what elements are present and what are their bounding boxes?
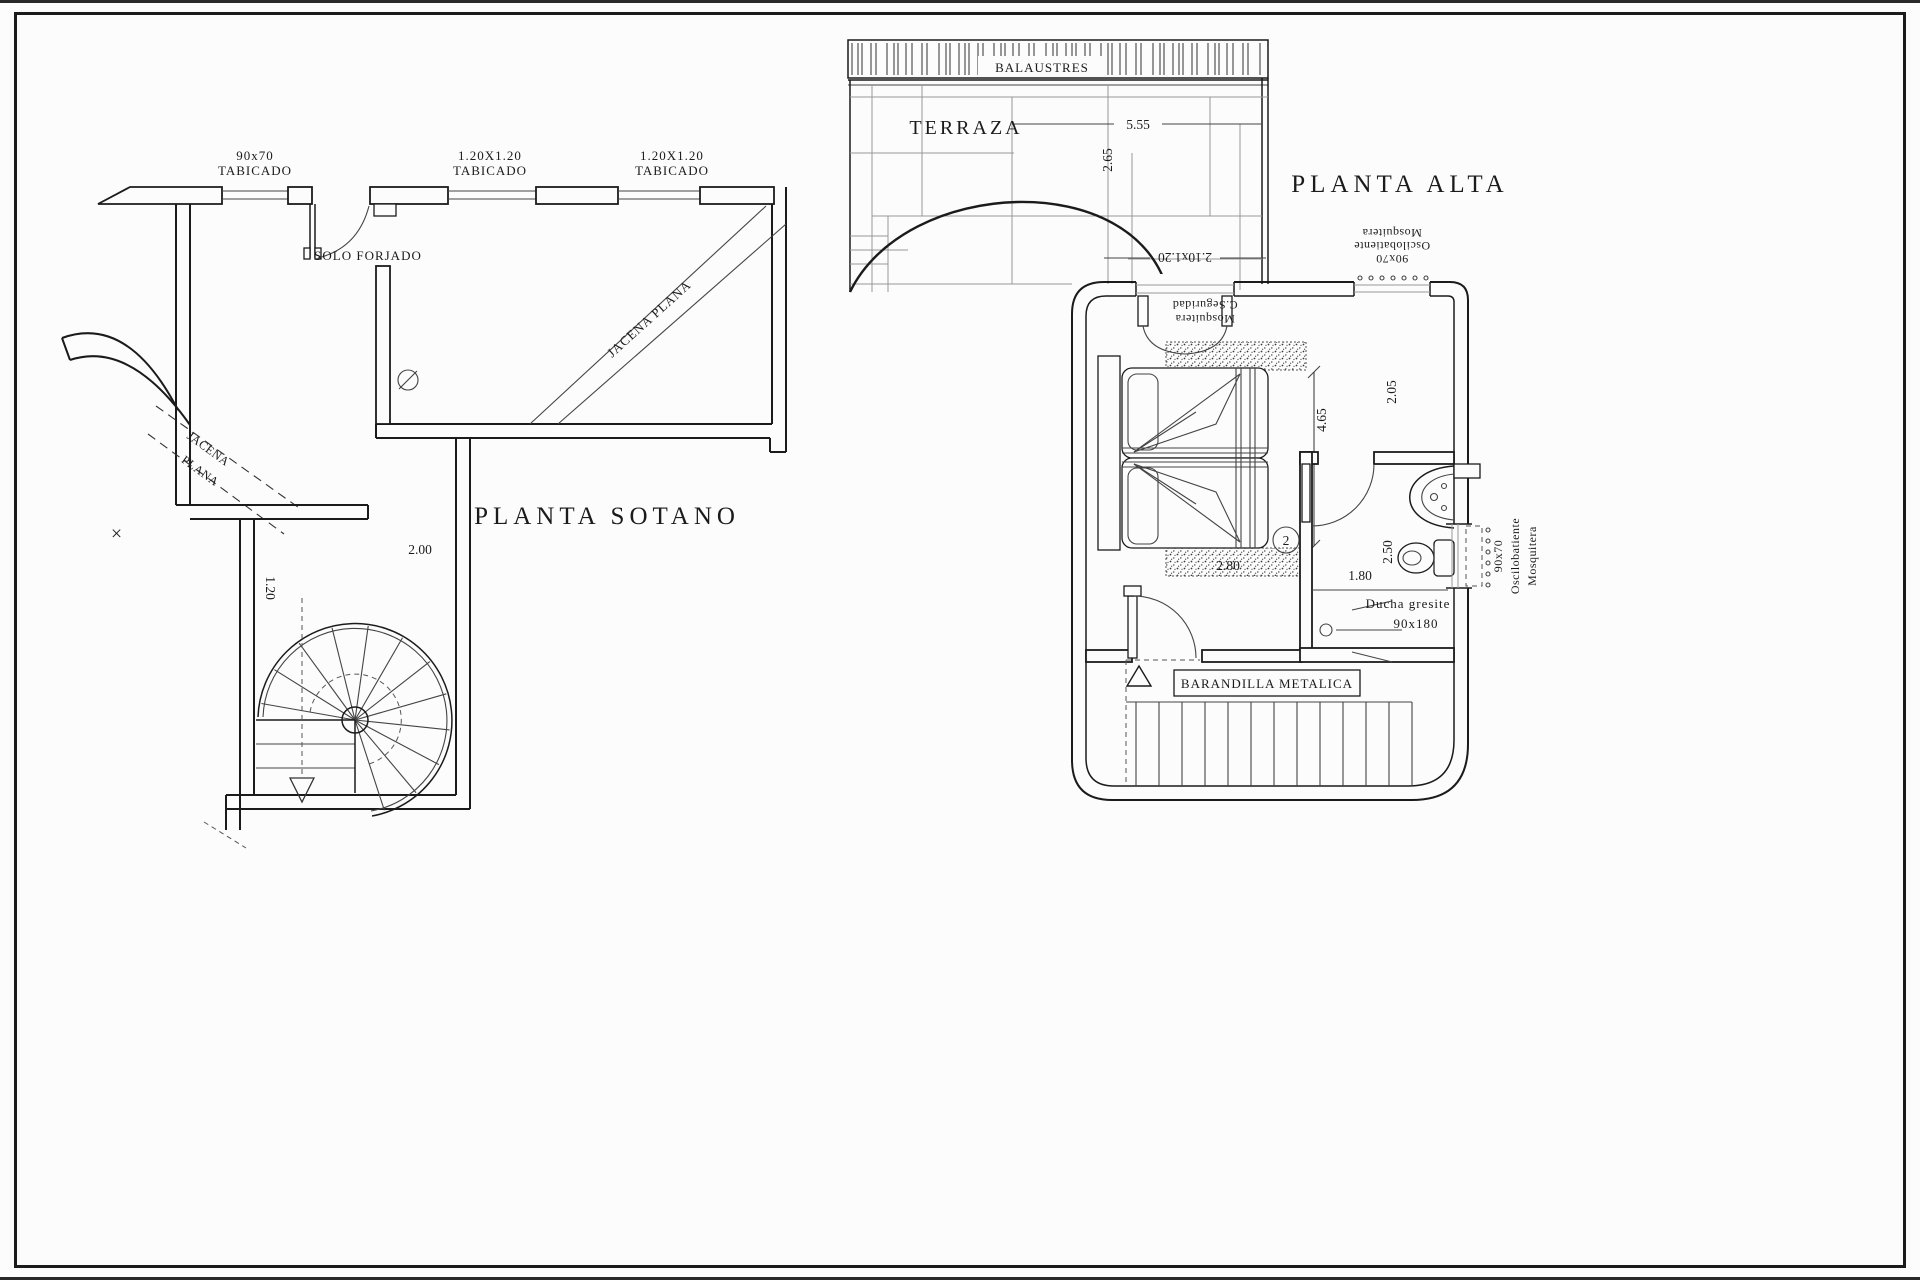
window2-size-label: 1.20X1.20 bbox=[458, 148, 522, 163]
wall-notch bbox=[374, 204, 396, 216]
dim-2.00: 2.00 bbox=[408, 542, 432, 557]
generated-line bbox=[355, 720, 449, 730]
window2-type-label: TABICADO bbox=[453, 163, 527, 178]
dim-1.80: 1.80 bbox=[1348, 568, 1372, 583]
stair-tread-lines bbox=[1136, 702, 1389, 786]
window3-size-label: 1.20X1.20 bbox=[640, 148, 704, 163]
dim-2.65: 2.65 bbox=[1100, 148, 1115, 172]
balaustres-label: BALAUSTRES bbox=[995, 60, 1089, 75]
french-door-opening bbox=[1136, 274, 1234, 300]
dim-1.20: 1.20 bbox=[263, 576, 278, 600]
dim-2.80: 2.80 bbox=[1216, 558, 1240, 573]
generated-line bbox=[355, 638, 403, 720]
generated-line bbox=[355, 626, 368, 720]
alta-title: PLANTA ALTA bbox=[1291, 171, 1508, 198]
stair-up-arrow bbox=[1127, 666, 1151, 686]
jacena-beam-label: JACENA PLANA bbox=[604, 277, 694, 360]
window1-size-label: 90x70 bbox=[236, 148, 274, 163]
toilet bbox=[1398, 540, 1454, 576]
right-window-screen: Mosquitera bbox=[1525, 526, 1539, 586]
curved-wall bbox=[62, 333, 190, 425]
plan-alta: BALAUSTRES bbox=[848, 40, 1539, 800]
generated-line bbox=[355, 720, 416, 793]
top-window-labels-flipped: 90x70 Oscilobatiente Mosquitera bbox=[1354, 226, 1430, 266]
dome-arc bbox=[850, 202, 1168, 292]
bedroom-entry-door bbox=[1124, 586, 1196, 658]
window1-type-label: TABICADO bbox=[218, 163, 292, 178]
washbasin bbox=[1410, 466, 1454, 528]
svg-text:Mosquitera: Mosquitera bbox=[1362, 226, 1422, 240]
door-swing-arc bbox=[1134, 596, 1196, 658]
floorplan-drawing: JACENA PLANA × JACENA PLANA bbox=[0, 0, 1920, 1280]
shower-drain bbox=[1320, 624, 1332, 636]
window3-type-label: TABICADO bbox=[635, 163, 709, 178]
wall-block bbox=[288, 187, 312, 204]
generated-line bbox=[355, 662, 430, 720]
sheet: JACENA PLANA × JACENA PLANA bbox=[0, 0, 1920, 1280]
terraza-label: TERRAZA bbox=[909, 117, 1022, 139]
wall-block bbox=[700, 187, 774, 204]
wall-angled-cap bbox=[98, 187, 222, 204]
spiral-staircase bbox=[256, 598, 452, 816]
sotano-title: PLANTA SOTANO bbox=[474, 503, 740, 530]
shower-label-1: Ducha gresite bbox=[1366, 596, 1451, 611]
dim-2.10x1.20-flipped: 2.10x1.20 bbox=[1158, 250, 1212, 265]
plan-sotano: JACENA PLANA × JACENA PLANA bbox=[62, 148, 786, 848]
dim-4.65: 4.65 bbox=[1314, 408, 1329, 432]
balusters-band: BALAUSTRES bbox=[848, 40, 1268, 78]
generated-line bbox=[299, 643, 355, 720]
railing-label-box: BARANDILLA METALICA bbox=[1174, 670, 1360, 696]
wall-jog bbox=[1454, 464, 1480, 478]
top-window-opening bbox=[1354, 274, 1430, 300]
stair-direction-arrow bbox=[290, 778, 314, 802]
door-swing-arc bbox=[1312, 464, 1374, 526]
svg-text:Oscilobatiente: Oscilobatiente bbox=[1354, 239, 1430, 253]
dim-2.50: 2.50 bbox=[1380, 540, 1395, 564]
sotano-partition-wall bbox=[376, 266, 390, 424]
svg-text:Mosquitera: Mosquitera bbox=[1175, 312, 1235, 326]
blanket-stipple-top bbox=[1166, 342, 1306, 370]
jacena-plana-dashed bbox=[148, 406, 302, 534]
shower-label-2: 90x180 bbox=[1394, 616, 1439, 631]
headboard bbox=[1098, 356, 1120, 550]
dim-5.55: 5.55 bbox=[1126, 117, 1150, 132]
sotano-top-wall bbox=[98, 187, 774, 216]
svg-text:C.Seguridad: C.Seguridad bbox=[1172, 298, 1237, 312]
solo-forjado-label: SOLO FORJADO bbox=[314, 248, 422, 263]
drain-symbol bbox=[398, 370, 418, 390]
scanned-floorplan-sheet: { "sheet": { "bg": "#fcfcfc", "ink": "#1… bbox=[0, 0, 1920, 1280]
door-screen-labels-flipped: Mosquitera C.Seguridad bbox=[1172, 298, 1237, 326]
room-number: 2 bbox=[1283, 533, 1290, 548]
right-window-size: 90x70 bbox=[1491, 540, 1505, 573]
barandilla-label: BARANDILLA METALICA bbox=[1181, 676, 1353, 691]
generated-line bbox=[332, 628, 355, 720]
wall-block bbox=[370, 187, 448, 204]
dim-2.05: 2.05 bbox=[1384, 380, 1399, 404]
twin-beds bbox=[1098, 342, 1306, 576]
right-window-type: Oscilobatiente bbox=[1508, 518, 1522, 594]
svg-text:90x70: 90x70 bbox=[1376, 252, 1409, 266]
sotano-bottom-wall bbox=[376, 424, 772, 438]
section-x-mark: × bbox=[111, 523, 125, 545]
generated-line bbox=[355, 694, 446, 720]
wall-block bbox=[536, 187, 618, 204]
